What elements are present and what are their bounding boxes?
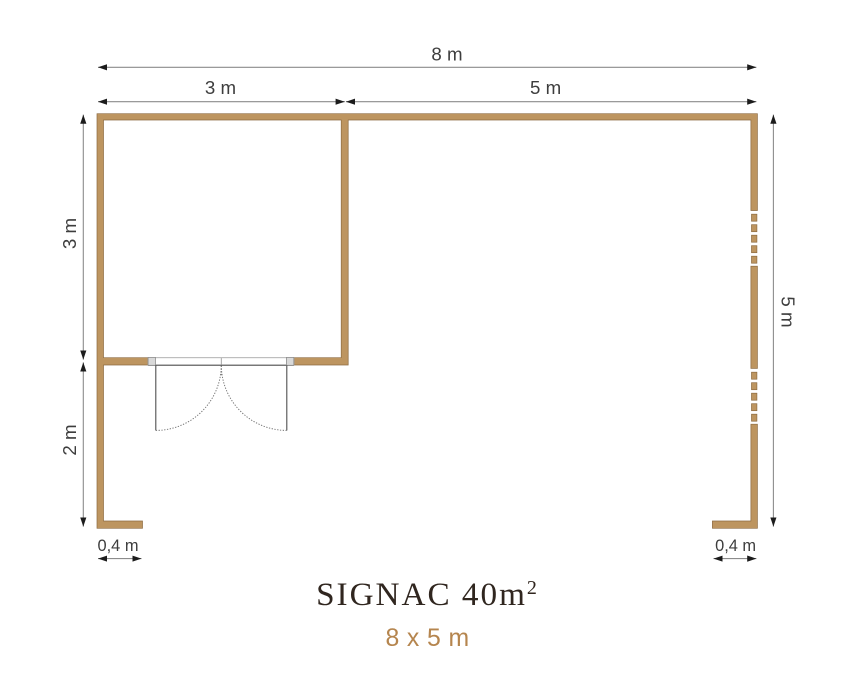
svg-text:SIGNAC 40m2: SIGNAC 40m2 bbox=[316, 576, 539, 613]
svg-text:5 m: 5 m bbox=[530, 77, 561, 98]
svg-text:3 m: 3 m bbox=[59, 218, 80, 249]
svg-text:0,4 m: 0,4 m bbox=[98, 537, 139, 555]
svg-text:5 m: 5 m bbox=[778, 296, 799, 327]
svg-text:2 m: 2 m bbox=[59, 424, 80, 455]
svg-text:8 m: 8 m bbox=[431, 43, 462, 64]
svg-text:8 x 5 m: 8 x 5 m bbox=[385, 625, 469, 652]
svg-text:3 m: 3 m bbox=[205, 77, 236, 98]
svg-text:0,4 m: 0,4 m bbox=[715, 537, 756, 555]
